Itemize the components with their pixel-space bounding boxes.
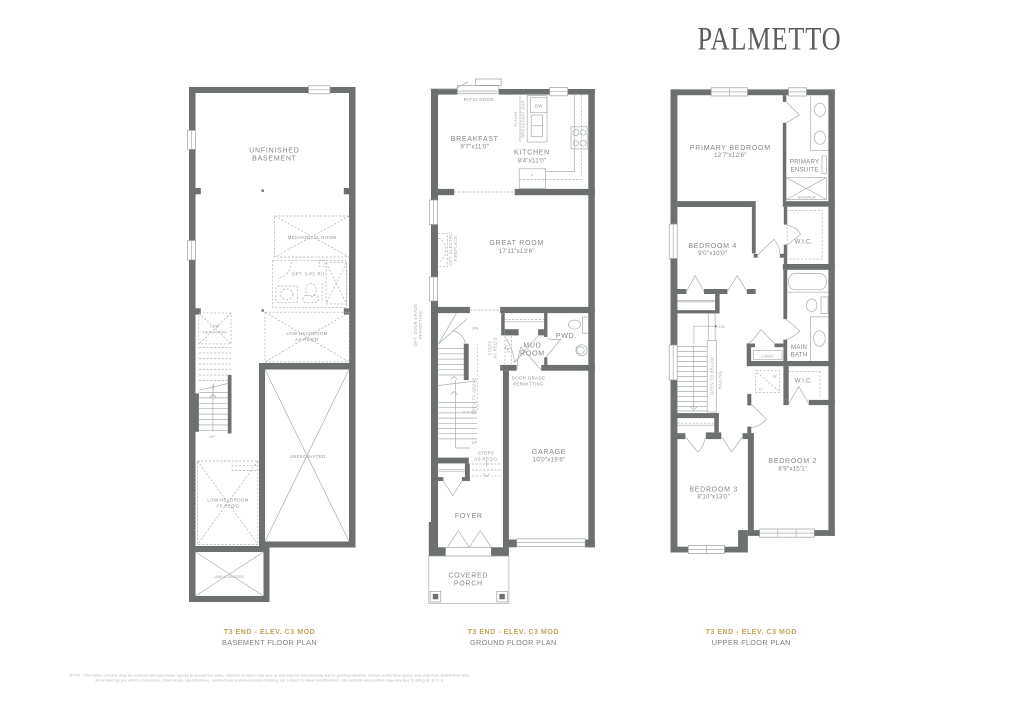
- svg-text:PERMITTING: PERMITTING: [513, 381, 544, 386]
- svg-text:LOW HEADROOM: LOW HEADROOM: [207, 498, 248, 503]
- svg-text:All renderings are artist's im: All renderings are artist's impression. …: [95, 677, 444, 682]
- svg-text:AS REQ'D: AS REQ'D: [493, 337, 498, 359]
- svg-text:W.I.C.: W.I.C.: [794, 239, 812, 246]
- svg-text:9'7"x11'0": 9'7"x11'0": [460, 143, 489, 150]
- svg-text:GROUND FLOOR PLAN: GROUND FLOOR PLAN: [470, 638, 557, 647]
- svg-text:BEDROOM 3: BEDROOM 3: [689, 486, 738, 493]
- svg-text:UNEXCAVATED: UNEXCAVATED: [214, 575, 244, 579]
- svg-text:ROOM: ROOM: [520, 351, 545, 358]
- svg-text:KITCHEN: KITCHEN: [514, 150, 550, 157]
- svg-text:DOOR GRADE: DOOR GRADE: [512, 375, 546, 380]
- svg-text:8'10"x13'0": 8'10"x13'0": [697, 494, 730, 501]
- svg-text:T3 END - ELEV. C3 MOD: T3 END - ELEV. C3 MOD: [224, 629, 315, 636]
- svg-text:17'11"x13'6": 17'11"x13'6": [499, 248, 535, 255]
- svg-text:MAIN: MAIN: [791, 344, 807, 351]
- svg-text:SHOWER: SHOWER: [798, 195, 816, 199]
- svg-text:FIREPLACE: FIREPLACE: [453, 236, 458, 261]
- svg-text:BEDROOM 2: BEDROOM 2: [768, 458, 817, 465]
- svg-text:10'0"x19'8": 10'0"x19'8": [533, 457, 566, 464]
- svg-text:9'0"x10'0": 9'0"x10'0": [698, 250, 727, 257]
- svg-text:ENSUITE: ENSUITE: [790, 167, 818, 174]
- svg-text:PATIO DOOR: PATIO DOOR: [464, 97, 494, 102]
- svg-text:STEPS: STEPS: [478, 451, 494, 456]
- svg-text:AS REQ'D: AS REQ'D: [216, 504, 239, 509]
- svg-text:BREAKFAST BAR: BREAKFAST BAR: [520, 100, 525, 138]
- svg-text:PRIMARY: PRIMARY: [790, 159, 819, 166]
- svg-text:UPPER FLOOR PLAN: UPPER FLOOR PLAN: [712, 638, 791, 647]
- svg-text:PRIMARY BEDROOM: PRIMARY BEDROOM: [690, 145, 771, 152]
- svg-text:UP: UP: [209, 435, 215, 439]
- svg-text:W.I.C.: W.I.C.: [795, 378, 813, 385]
- svg-text:OPT. 3-PC R/I: OPT. 3-PC R/I: [292, 272, 324, 277]
- svg-text:BASEMENT: BASEMENT: [252, 156, 297, 163]
- svg-text:DN: DN: [719, 325, 725, 329]
- svg-text:BATH: BATH: [791, 351, 808, 358]
- svg-text:GREAT ROOM: GREAT ROOM: [489, 240, 544, 247]
- svg-text:3R: 3R: [506, 347, 511, 353]
- svg-text:RAILING: RAILING: [718, 371, 723, 389]
- svg-text:DN: DN: [473, 327, 479, 331]
- svg-text:8'4"x11'0": 8'4"x11'0": [518, 158, 547, 165]
- svg-text:FOYER: FOYER: [455, 513, 483, 520]
- svg-text:PWD.: PWD.: [556, 333, 577, 340]
- svg-text:AS REQ'D: AS REQ'D: [474, 457, 497, 462]
- svg-text:PORCH: PORCH: [454, 580, 483, 587]
- svg-text:UP: UP: [472, 441, 478, 445]
- svg-text:MECHANICAL ROOM: MECHANICAL ROOM: [288, 235, 337, 240]
- svg-text:12'7"x12'6": 12'7"x12'6": [714, 152, 747, 159]
- svg-text:GARAGE: GARAGE: [532, 449, 566, 456]
- svg-text:D: D: [759, 388, 762, 392]
- svg-text:FLUSH: FLUSH: [513, 112, 518, 127]
- svg-text:COVERED: COVERED: [448, 572, 488, 579]
- svg-text:AS REQ'D: AS REQ'D: [295, 337, 318, 342]
- svg-text:OPEN TO ABOVE: OPEN TO ABOVE: [472, 377, 477, 414]
- svg-text:UNFINISHED: UNFINISHED: [249, 148, 299, 155]
- svg-text:DW: DW: [535, 104, 544, 109]
- svg-text:HEADROOM: HEADROOM: [203, 331, 227, 335]
- svg-text:OPEN TO BELOW: OPEN TO BELOW: [709, 357, 714, 395]
- svg-text:LOW: LOW: [210, 325, 219, 329]
- svg-text:BREAKFAST: BREAKFAST: [451, 136, 499, 143]
- svg-text:UNEXCAVATED: UNEXCAVATED: [290, 454, 326, 459]
- svg-text:MUD: MUD: [523, 343, 541, 350]
- svg-text:T3 END - ELEV. C3 MOD: T3 END - ELEV. C3 MOD: [706, 629, 797, 636]
- svg-text:PERMITTING: PERMITTING: [418, 311, 423, 339]
- svg-text:8'9"x15'1": 8'9"x15'1": [778, 465, 807, 472]
- svg-text:T3 END - ELEV. C3 MOD: T3 END - ELEV. C3 MOD: [468, 629, 559, 636]
- svg-text:BEDROOM 4: BEDROOM 4: [688, 243, 737, 250]
- svg-text:BASEMENT FLOOR PLAN: BASEMENT FLOOR PLAN: [222, 638, 317, 647]
- svg-text:LOW HEADROOM: LOW HEADROOM: [286, 331, 327, 336]
- svg-text:LINEN: LINEN: [761, 354, 773, 358]
- svg-text:PALMETTO: PALMETTO: [698, 22, 842, 58]
- svg-text:W: W: [773, 375, 777, 379]
